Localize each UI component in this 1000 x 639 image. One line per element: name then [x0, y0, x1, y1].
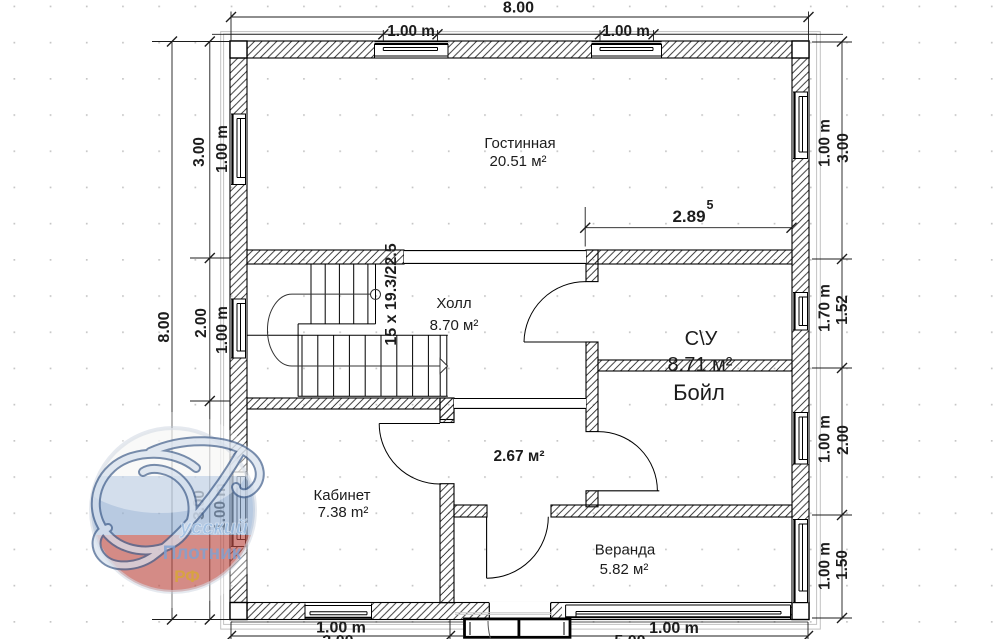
- svg-text:2.00: 2.00: [835, 425, 852, 455]
- svg-text:20.51 м²: 20.51 м²: [489, 153, 546, 170]
- svg-text:1.00 m: 1.00 m: [817, 119, 834, 167]
- svg-text:8.00: 8.00: [156, 311, 173, 342]
- svg-text:1.00 m: 1.00 m: [649, 620, 699, 637]
- svg-text:Гостинная: Гостинная: [484, 135, 555, 152]
- svg-text:3.00: 3.00: [322, 633, 353, 639]
- svg-text:1.00 m: 1.00 m: [602, 23, 650, 40]
- svg-text:Плотник: Плотник: [163, 543, 242, 564]
- svg-text:15 x 19.3/22.5: 15 x 19.3/22.5: [383, 243, 400, 345]
- svg-text:1.00 m: 1.00 m: [387, 23, 435, 40]
- svg-text:8.70 м²: 8.70 м²: [430, 317, 479, 334]
- svg-text:РФ: РФ: [174, 567, 200, 586]
- svg-text:5.00: 5.00: [614, 633, 645, 639]
- svg-text:3.00: 3.00: [191, 137, 208, 167]
- svg-text:Холл: Холл: [436, 295, 471, 312]
- svg-text:1.50: 1.50: [834, 550, 851, 580]
- svg-text:5.82 м²: 5.82 м²: [600, 561, 649, 578]
- svg-text:8.71 м²: 8.71 м²: [668, 354, 733, 376]
- svg-text:1.00 m: 1.00 m: [817, 415, 834, 463]
- svg-text:3.00: 3.00: [835, 133, 852, 163]
- svg-text:8.00: 8.00: [503, 0, 534, 17]
- svg-text:Кабинет: Кабинет: [313, 487, 370, 504]
- svg-text:5: 5: [707, 198, 714, 212]
- svg-text:2.67 м²: 2.67 м²: [493, 448, 544, 465]
- svg-text:Веранда: Веранда: [595, 542, 656, 559]
- svg-text:усский: усский: [179, 517, 248, 539]
- svg-text:1.00 m: 1.00 m: [214, 125, 231, 173]
- svg-text:1.00 m: 1.00 m: [214, 306, 231, 354]
- svg-text:1.70 m: 1.70 m: [817, 284, 834, 332]
- svg-text:7.38 m²: 7.38 m²: [318, 504, 369, 521]
- svg-text:Бойл: Бойл: [673, 380, 725, 405]
- svg-text:2.89: 2.89: [672, 207, 705, 226]
- svg-text:С\У: С\У: [685, 328, 718, 350]
- svg-text:1.00 m: 1.00 m: [817, 542, 834, 590]
- svg-text:2.00: 2.00: [193, 308, 210, 338]
- svg-text:1.52: 1.52: [834, 295, 851, 325]
